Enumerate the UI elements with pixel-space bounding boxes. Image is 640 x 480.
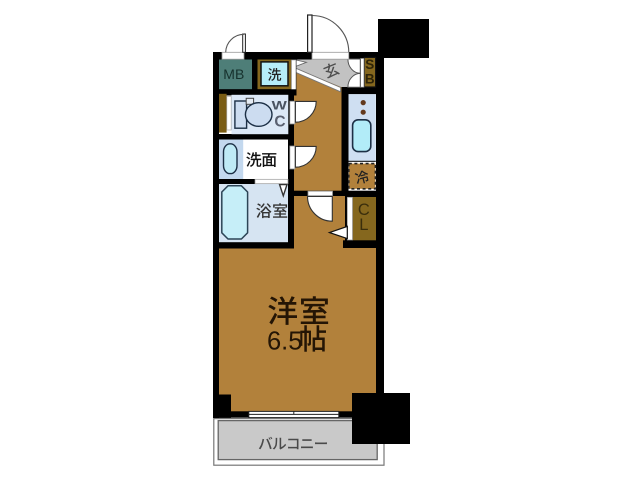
svg-text:S: S	[365, 57, 374, 72]
svg-text:C: C	[274, 114, 285, 131]
svg-text:B: B	[365, 72, 375, 87]
svg-text:6.5: 6.5	[267, 328, 302, 356]
svg-text:L: L	[359, 216, 368, 234]
svg-text:MB: MB	[223, 66, 244, 82]
svg-text:W: W	[272, 100, 287, 112]
